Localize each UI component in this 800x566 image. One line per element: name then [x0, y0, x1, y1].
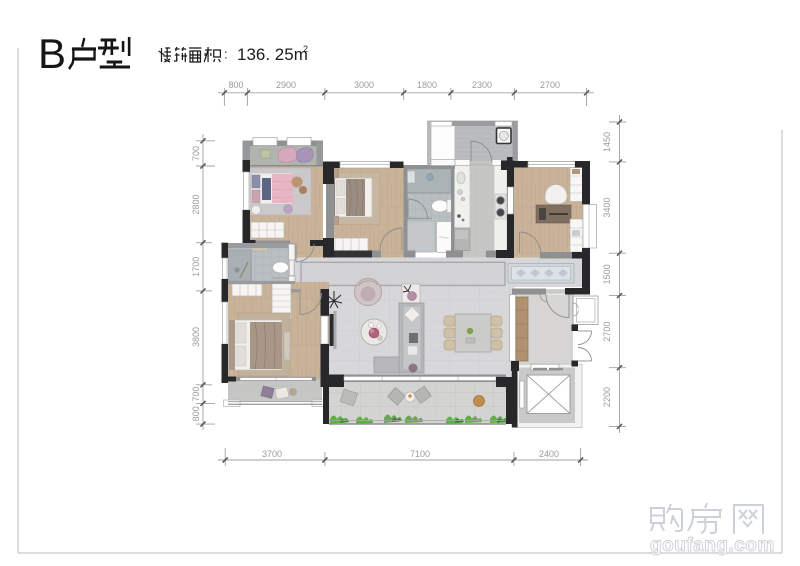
svg-text:3000: 3000 [354, 80, 374, 90]
svg-text:3400: 3400 [602, 197, 612, 217]
svg-text:1800: 1800 [417, 80, 437, 90]
svg-text:2700: 2700 [602, 322, 612, 342]
svg-text:2400: 2400 [539, 449, 559, 459]
svg-text:B: B [38, 30, 66, 77]
svg-text:3800: 3800 [191, 327, 201, 347]
svg-text:1500: 1500 [602, 264, 612, 284]
svg-text:700: 700 [191, 146, 201, 161]
svg-text:2900: 2900 [276, 80, 296, 90]
svg-text:2300: 2300 [472, 80, 492, 90]
svg-text:2700: 2700 [540, 80, 560, 90]
svg-text:2: 2 [303, 44, 308, 54]
svg-text:800: 800 [191, 406, 201, 421]
svg-text:7100: 7100 [410, 449, 430, 459]
svg-text::: : [224, 47, 228, 62]
svg-text:1450: 1450 [602, 132, 612, 152]
svg-text:goufang.com: goufang.com [650, 535, 775, 556]
svg-text:800: 800 [228, 80, 243, 90]
svg-text:1700: 1700 [191, 257, 201, 277]
svg-text:700: 700 [191, 387, 201, 402]
svg-text:2800: 2800 [191, 194, 201, 214]
svg-text:136. 25m: 136. 25m [237, 45, 308, 64]
svg-text:2200: 2200 [602, 387, 612, 407]
svg-text:3700: 3700 [262, 449, 282, 459]
